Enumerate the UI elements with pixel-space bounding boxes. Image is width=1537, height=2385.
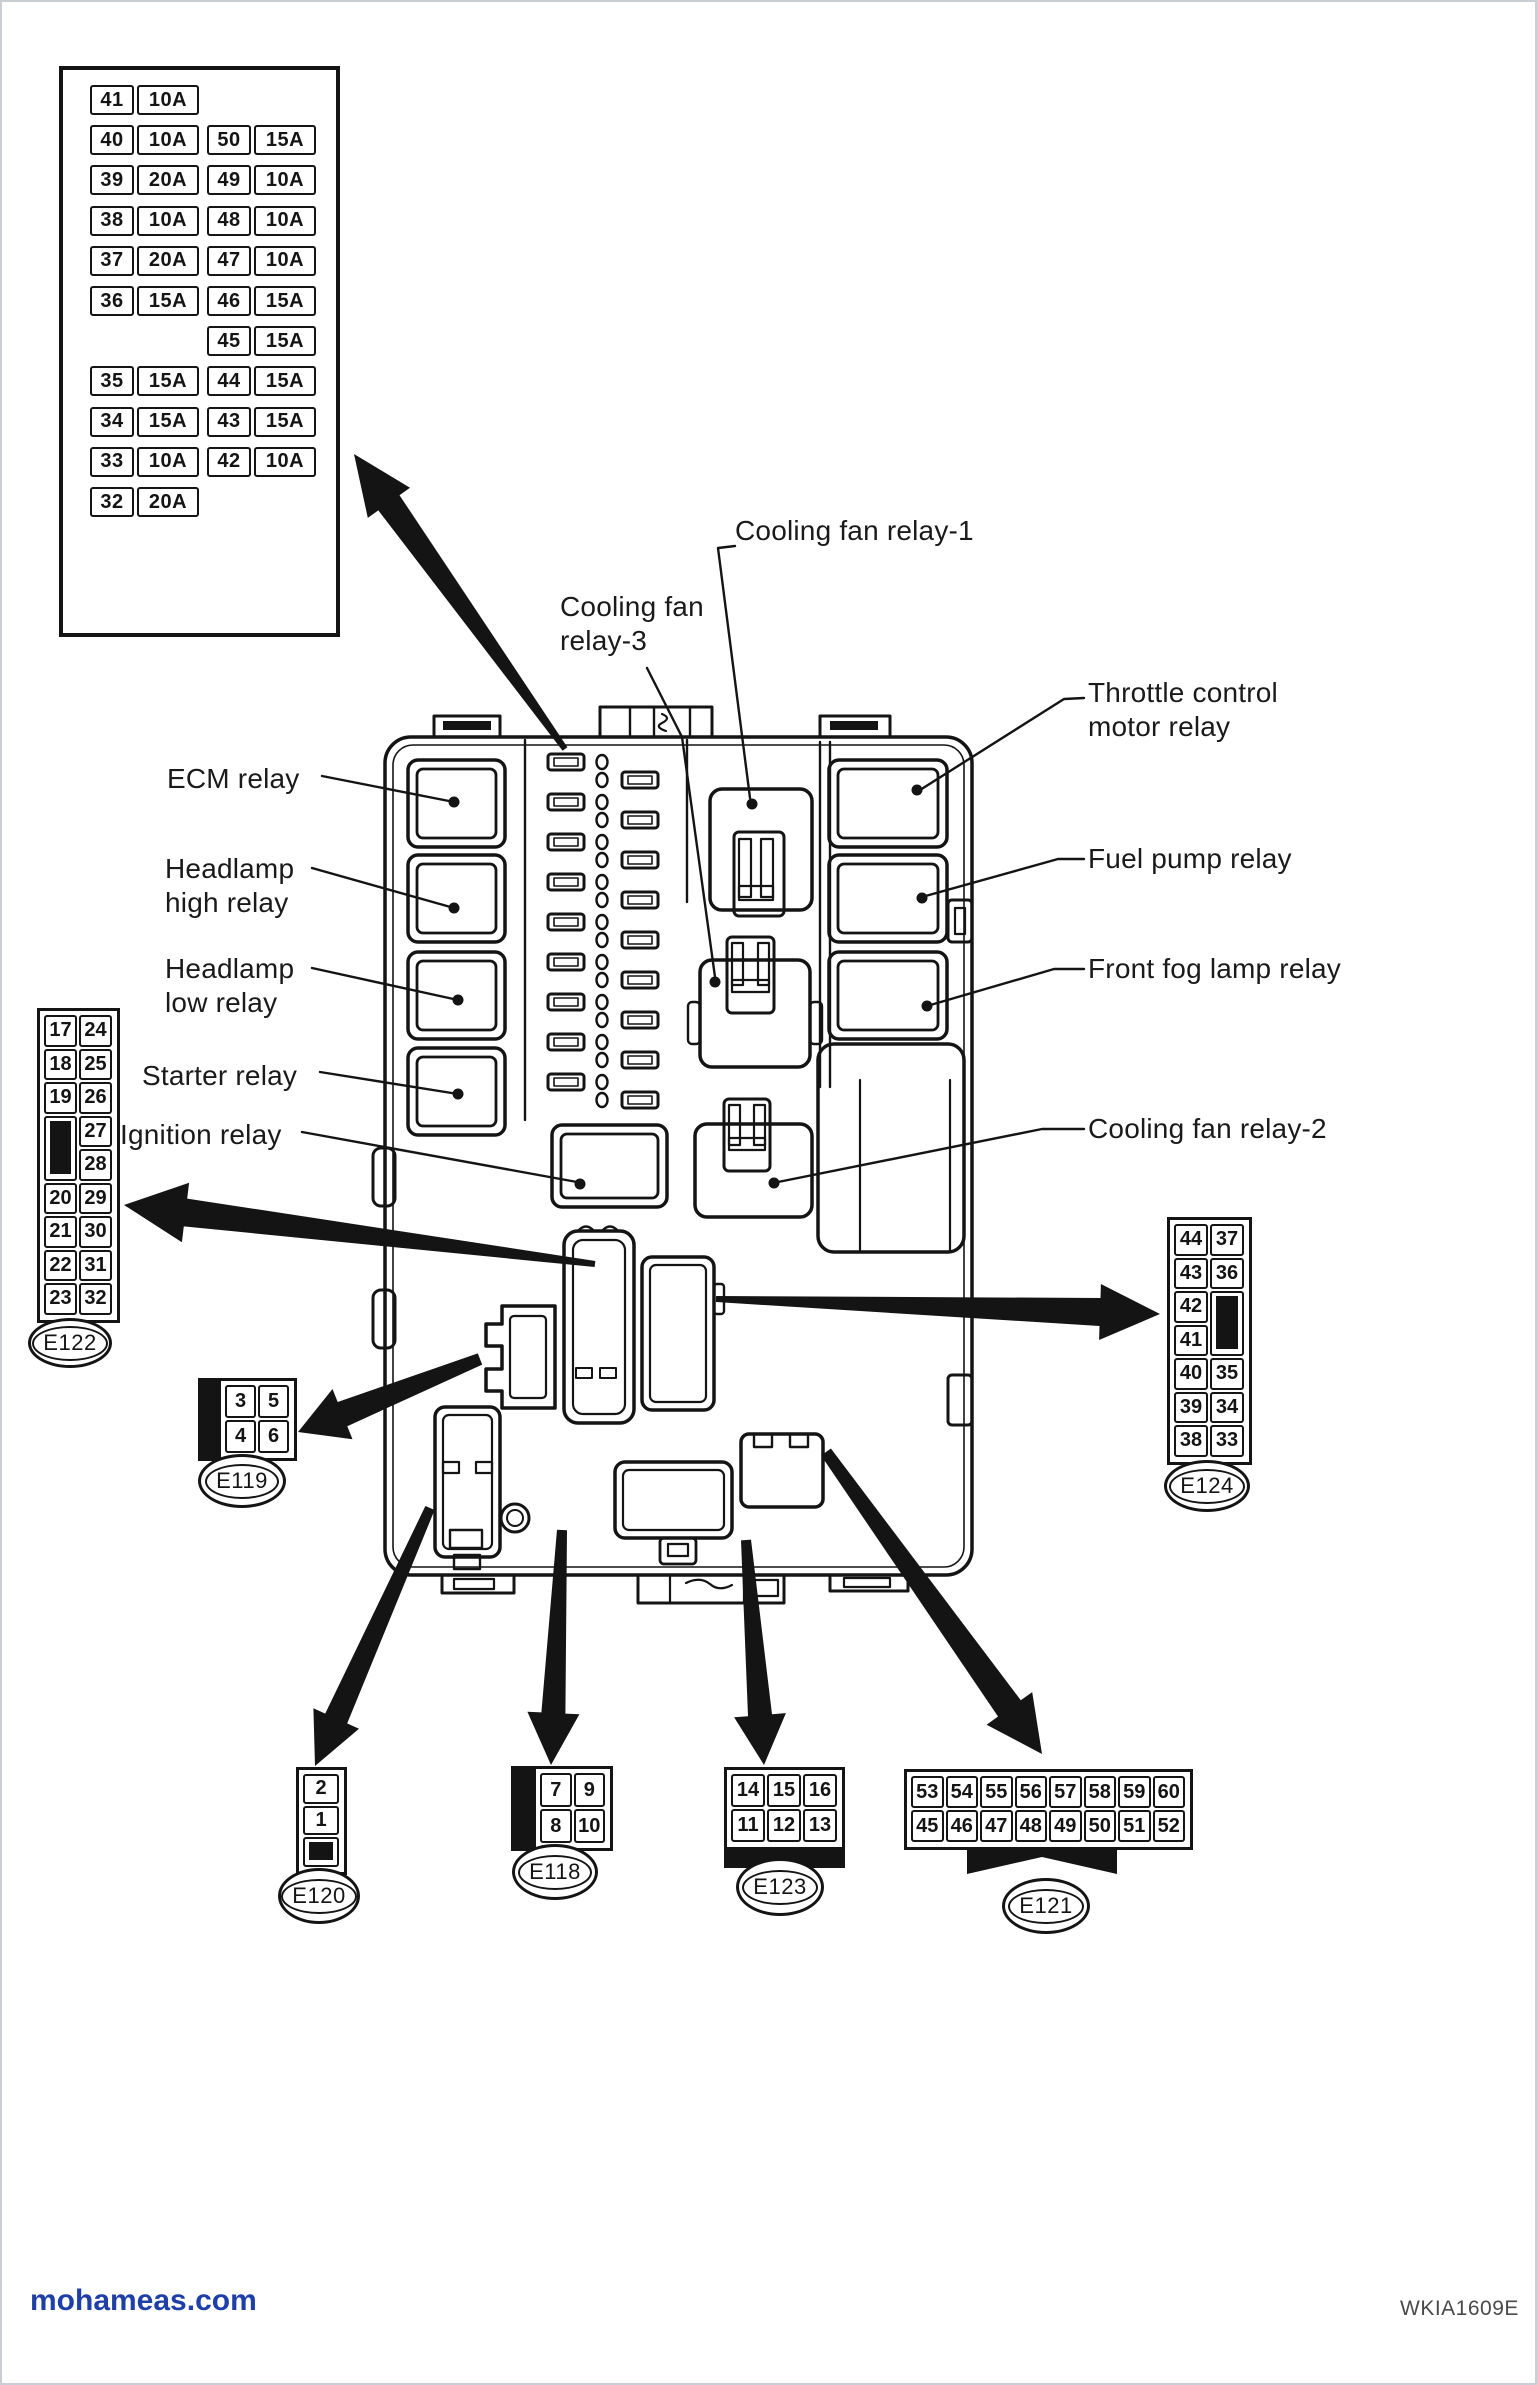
connector-key-strip — [514, 1769, 536, 1848]
connector-pin-cell: 52 — [1153, 1810, 1186, 1842]
connector-id-label: E119 — [205, 1464, 279, 1499]
label-cooling-fan-relay-3: Cooling fan relay-3 — [560, 590, 704, 658]
connector-pin-cell: 12 — [767, 1809, 801, 1842]
label-headlamp-high-relay: Headlamp high relay — [165, 852, 294, 920]
connector-pin-cell: 7 — [540, 1773, 572, 1807]
fuse-amp-rating: 10A — [137, 85, 199, 115]
fuse-amp-rating: 20A — [137, 487, 199, 517]
fuse-number: 38 — [90, 206, 134, 236]
connector-pin-cell: 27 — [79, 1116, 112, 1148]
fuse-amp-rating: 15A — [254, 125, 316, 155]
fuse-amp-rating: 10A — [254, 246, 316, 276]
right-relays — [818, 760, 964, 1252]
connector-pin-cell: 4 — [225, 1420, 256, 1453]
connector-pin-cell: 2 — [303, 1774, 339, 1804]
fuse-amp-rating: 15A — [254, 366, 316, 396]
connector-blocked-cell — [303, 1837, 339, 1867]
connector-id-oval: E122 — [28, 1318, 112, 1368]
connector-id-oval: E120 — [278, 1868, 360, 1924]
fuse-number: 35 — [90, 366, 134, 396]
connector-pin-cell: 25 — [79, 1049, 112, 1081]
fuse-number: 45 — [207, 326, 251, 356]
connector-pin-cell: 24 — [79, 1015, 112, 1047]
connector-pin-cell: 16 — [803, 1774, 837, 1807]
fuse-amp-rating: 15A — [254, 326, 316, 356]
connector-pin-cell: 44 — [1174, 1224, 1208, 1256]
connector-id-oval: E118 — [512, 1844, 598, 1900]
connector-pin-cell: 15 — [767, 1774, 801, 1807]
fuse-amp-rating: 15A — [137, 286, 199, 316]
connector-pin-cell: 55 — [980, 1776, 1013, 1808]
fuse-number: 37 — [90, 246, 134, 276]
label-cooling-fan-relay-1: Cooling fan relay-1 — [735, 514, 974, 548]
fuse-amp-rating: 15A — [254, 286, 316, 316]
fuse-number: 46 — [207, 286, 251, 316]
connector-pin-cell: 6 — [258, 1420, 289, 1453]
connector-pin-cell: 35 — [1210, 1358, 1244, 1390]
connector-table-e124: 443743364241403539343833 — [1167, 1217, 1252, 1465]
label-headlamp-low-relay: Headlamp low relay — [165, 952, 294, 1020]
connector-pin-cell: 39 — [1174, 1392, 1208, 1424]
connector-id-oval: E124 — [1164, 1460, 1250, 1512]
fuse-number: 36 — [90, 286, 134, 316]
connector-pin-cell: 20 — [44, 1183, 77, 1215]
connector-table-e122: 17241825192627282029213022312332 — [37, 1008, 120, 1323]
label-ecm-relay: ECM relay — [167, 762, 300, 796]
bottom-connectors — [435, 1227, 823, 1570]
connector-pin-cell: 45 — [911, 1810, 944, 1842]
site-watermark-link[interactable]: mohameas.com — [30, 2284, 257, 2318]
connector-pin-cell: 58 — [1084, 1776, 1117, 1808]
fuse-ladder — [548, 754, 658, 1108]
middle-connectors — [688, 789, 822, 1217]
connector-pin-cell: 42 — [1174, 1291, 1208, 1323]
fuse-number: 39 — [90, 165, 134, 195]
connector-pin-cell: 50 — [1084, 1810, 1117, 1842]
connector-key-strip — [201, 1381, 221, 1458]
connector-table-e120: 21 — [296, 1767, 347, 1875]
connector-pin-cell: 13 — [803, 1809, 837, 1842]
connector-pin-cell: 8 — [540, 1809, 572, 1843]
connector-blocked-cell — [44, 1116, 77, 1181]
connector-pin-cell: 23 — [44, 1283, 77, 1315]
connector-pin-cell: 5 — [258, 1385, 289, 1418]
label-cooling-fan-relay-2: Cooling fan relay-2 — [1088, 1112, 1327, 1146]
fuse-amp-rating: 10A — [254, 447, 316, 477]
connector-id-label: E118 — [518, 1855, 592, 1890]
connector-pin-cell: 29 — [79, 1183, 112, 1215]
figure-code: WKIA1609E — [1400, 2297, 1519, 2321]
connector-pin-cell: 51 — [1118, 1810, 1151, 1842]
fuse-number: 41 — [90, 85, 134, 115]
connector-pin-cell: 28 — [79, 1149, 112, 1181]
connector-pin-cell: 1 — [303, 1806, 339, 1836]
connector-pin-cell: 43 — [1174, 1258, 1208, 1290]
fuse-amp-rating: 10A — [137, 125, 199, 155]
fuse-amp-rating: 15A — [254, 407, 316, 437]
connector-id-label: E123 — [742, 1870, 817, 1905]
connector-pin-cell: 17 — [44, 1015, 77, 1047]
connector-pin-cell: 30 — [79, 1216, 112, 1248]
connector-table-e118: 79810 — [511, 1766, 613, 1851]
connector-pin-cell: 47 — [980, 1810, 1013, 1842]
connector-pin-cell: 38 — [1174, 1425, 1208, 1457]
fuse-number: 48 — [207, 206, 251, 236]
label-front-fog-lamp-relay: Front fog lamp relay — [1088, 952, 1341, 986]
connector-pin-cell: 56 — [1015, 1776, 1048, 1808]
connector-pin-cell: 33 — [1210, 1425, 1244, 1457]
connector-pin-cell: 49 — [1049, 1810, 1082, 1842]
pointer-arrows — [124, 454, 1160, 1874]
connector-table-e119: 3546 — [198, 1378, 297, 1461]
scanned-fusebox-diagram-page: 4110A4010A3920A3810A3720A3615A3515A3415A… — [0, 0, 1537, 2385]
connector-pin-cell: 60 — [1153, 1776, 1186, 1808]
connector-pin-cell: 32 — [79, 1283, 112, 1315]
connector-pin-cell: 40 — [1174, 1358, 1208, 1390]
connector-pin-cell: 26 — [79, 1082, 112, 1114]
connector-id-oval: E119 — [198, 1454, 286, 1508]
fuse-number: 40 — [90, 125, 134, 155]
label-ignition-relay: Ignition relay — [120, 1118, 282, 1152]
label-throttle-control-motor-relay: Throttle control motor relay — [1088, 676, 1278, 744]
connector-pin-cell: 37 — [1210, 1224, 1244, 1256]
connector-pin-cell: 14 — [731, 1774, 765, 1807]
connector-pin-cell: 18 — [44, 1049, 77, 1081]
fusebox-outline — [373, 707, 972, 1603]
connector-id-oval: E123 — [736, 1858, 824, 1916]
fuse-amp-rating: 10A — [254, 206, 316, 236]
label-starter-relay: Starter relay — [142, 1059, 297, 1093]
fuse-amp-rating: 10A — [137, 447, 199, 477]
fuse-amp-rating: 15A — [137, 366, 199, 396]
connector-pin-cell: 54 — [946, 1776, 979, 1808]
connector-pin-cell: 48 — [1015, 1810, 1048, 1842]
connector-blocked-cell — [1210, 1291, 1244, 1356]
fuse-amp-rating: 15A — [137, 407, 199, 437]
fuse-number: 47 — [207, 246, 251, 276]
fuse-amp-table: 4110A4010A3920A3810A3720A3615A3515A3415A… — [59, 66, 340, 637]
connector-id-label: E122 — [32, 1326, 107, 1361]
connector-pin-cell: 36 — [1210, 1258, 1244, 1290]
connector-table-e121: 53545556575859604546474849505152 — [904, 1769, 1193, 1850]
connector-table-e123: 141516111213 — [724, 1767, 845, 1868]
fuse-amp-rating: 20A — [137, 246, 199, 276]
fuse-number: 50 — [207, 125, 251, 155]
fuse-number: 32 — [90, 487, 134, 517]
label-fuel-pump-relay: Fuel pump relay — [1088, 842, 1292, 876]
connector-pin-cell: 10 — [574, 1809, 606, 1843]
fuse-amp-rating: 10A — [137, 206, 199, 236]
fuse-amp-rating: 20A — [137, 165, 199, 195]
connector-pin-cell: 41 — [1174, 1325, 1208, 1357]
connector-pin-cell: 11 — [731, 1809, 765, 1842]
connector-pin-cell: 34 — [1210, 1392, 1244, 1424]
connector-pin-cell: 9 — [574, 1773, 606, 1807]
connector-pin-cell: 31 — [79, 1250, 112, 1282]
connector-id-label: E121 — [1008, 1889, 1083, 1924]
connector-pin-cell: 19 — [44, 1082, 77, 1114]
connector-pin-cell: 53 — [911, 1776, 944, 1808]
connector-pin-cell: 59 — [1118, 1776, 1151, 1808]
connector-pin-cell: 46 — [946, 1810, 979, 1842]
fuse-number: 33 — [90, 447, 134, 477]
fuse-number: 34 — [90, 407, 134, 437]
connector-pin-cell: 3 — [225, 1385, 256, 1418]
connector-id-oval: E121 — [1002, 1878, 1090, 1934]
fuse-number: 44 — [207, 366, 251, 396]
connector-id-label: E124 — [1169, 1469, 1244, 1504]
connector-pin-cell: 57 — [1049, 1776, 1082, 1808]
connector-id-label: E120 — [281, 1879, 356, 1914]
fuse-number: 42 — [207, 447, 251, 477]
fuse-amp-rating: 10A — [254, 165, 316, 195]
connector-pin-cell: 21 — [44, 1216, 77, 1248]
fuse-number: 49 — [207, 165, 251, 195]
connector-pin-cell: 22 — [44, 1250, 77, 1282]
fuse-number: 43 — [207, 407, 251, 437]
